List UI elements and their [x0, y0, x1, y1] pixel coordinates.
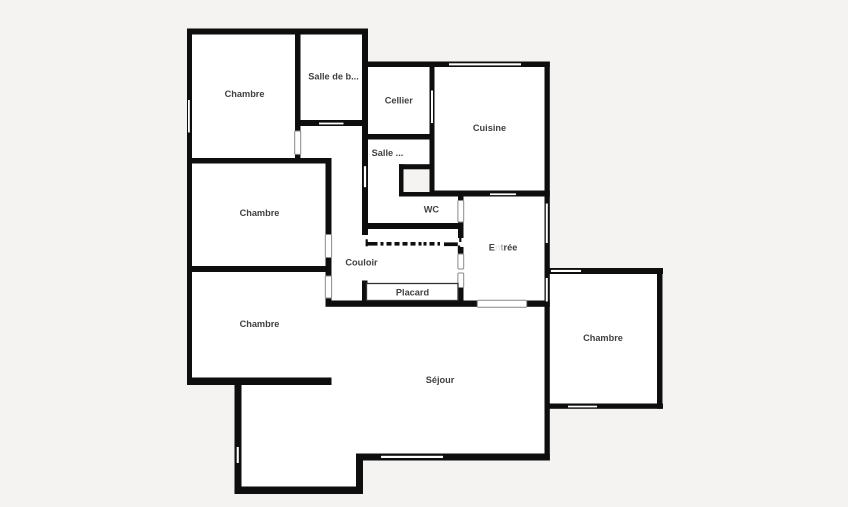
svg-text:WC: WC: [424, 205, 440, 215]
svg-text:Couloir: Couloir: [345, 258, 378, 268]
svg-text:Séjour: Séjour: [426, 375, 455, 385]
svg-text:Entrée: Entrée: [489, 243, 518, 253]
svg-text:Chambre: Chambre: [240, 208, 280, 218]
svg-text:Chambre: Chambre: [583, 333, 623, 343]
svg-text:Cuisine: Cuisine: [473, 123, 506, 133]
svg-text:Salle ...: Salle ...: [372, 148, 404, 158]
svg-text:Placard: Placard: [396, 287, 429, 297]
svg-text:Chambre: Chambre: [225, 89, 265, 99]
svg-text:Chambre: Chambre: [240, 319, 280, 329]
svg-text:Salle de b...: Salle de b...: [308, 72, 359, 82]
svg-text:Cellier: Cellier: [385, 96, 414, 106]
